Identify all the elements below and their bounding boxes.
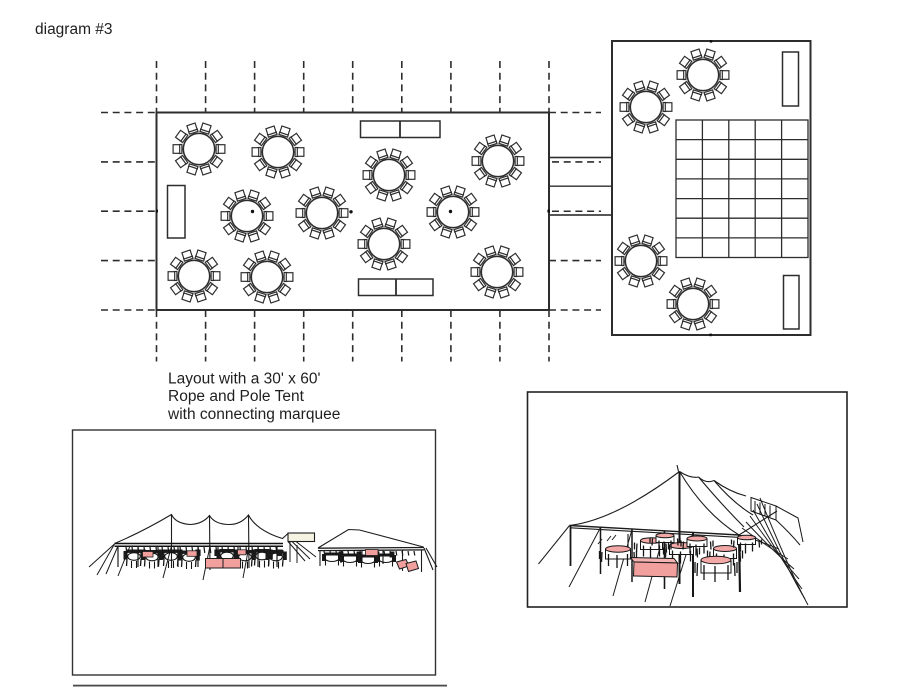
svg-text:diagram #3: diagram #3 xyxy=(35,21,113,38)
svg-text:Layout with a 30' x 60': Layout with a 30' x 60' xyxy=(168,371,320,388)
svg-text:with connecting marquee: with connecting marquee xyxy=(167,406,340,423)
svg-text:Rope and Pole Tent: Rope and Pole Tent xyxy=(168,388,305,405)
